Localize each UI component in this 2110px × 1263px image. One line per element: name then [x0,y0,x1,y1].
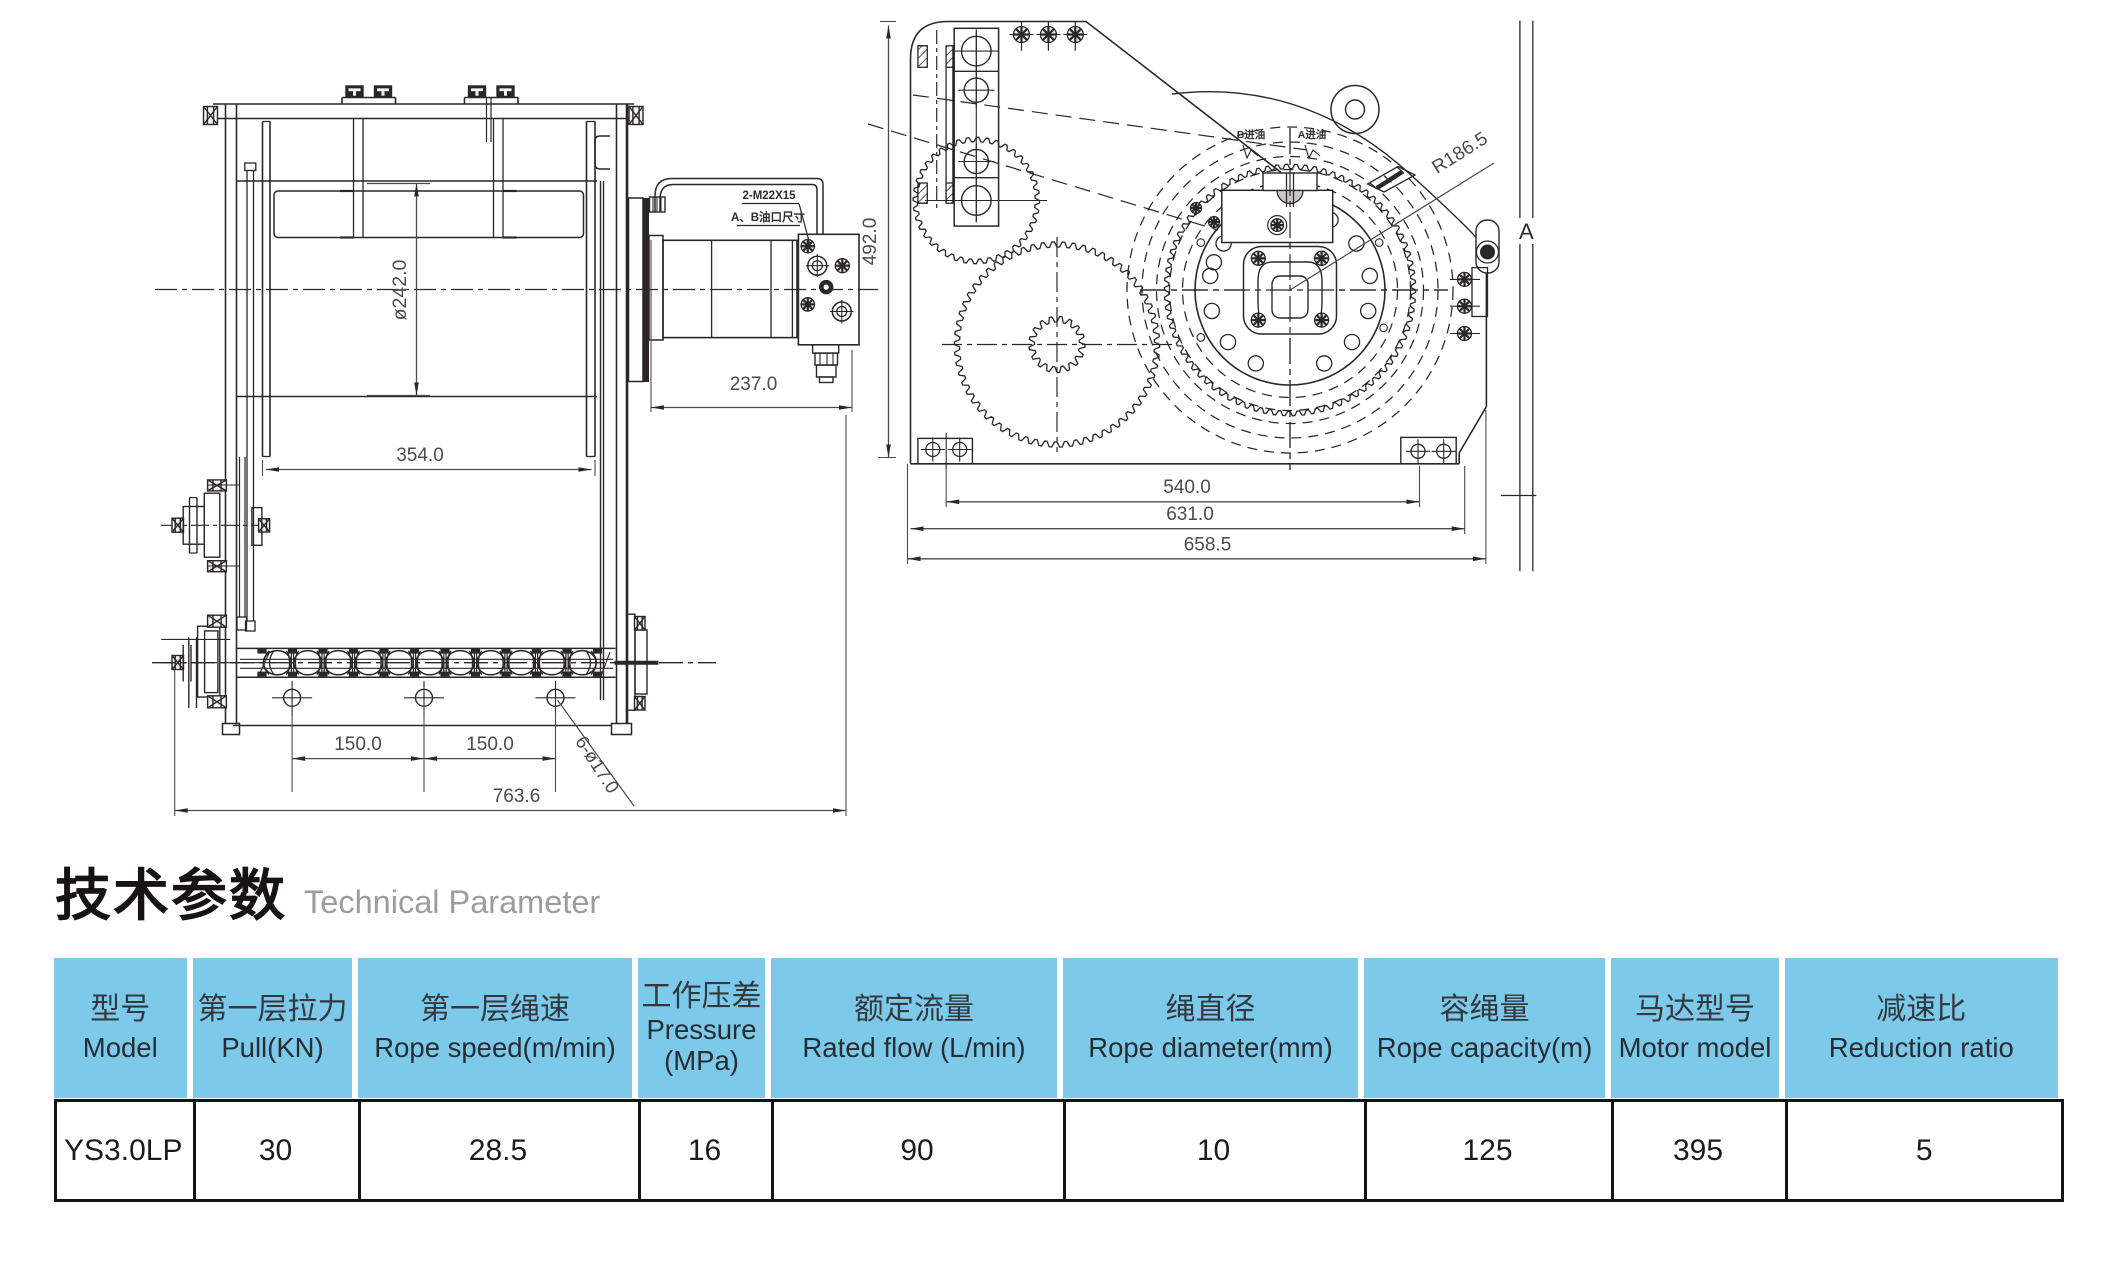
svg-text:631.0: 631.0 [1166,504,1214,525]
svg-text:354.0: 354.0 [396,445,444,466]
svg-text:763.6: 763.6 [493,786,541,807]
svg-text:A、B油口尺寸: A、B油口尺寸 [731,210,806,224]
svg-text:ø242.0: ø242.0 [389,259,411,320]
svg-text:2-M22X15: 2-M22X15 [742,190,796,202]
svg-text:150.0: 150.0 [334,734,382,755]
svg-text:658.5: 658.5 [1184,535,1232,556]
svg-text:237.0: 237.0 [730,374,778,395]
svg-text:492.0: 492.0 [860,218,881,266]
svg-text:B进油: B进油 [1237,128,1266,141]
svg-text:A进油: A进油 [1298,128,1327,141]
svg-text:A: A [1519,219,1534,244]
svg-text:540.0: 540.0 [1163,477,1211,498]
svg-text:150.0: 150.0 [466,734,514,755]
